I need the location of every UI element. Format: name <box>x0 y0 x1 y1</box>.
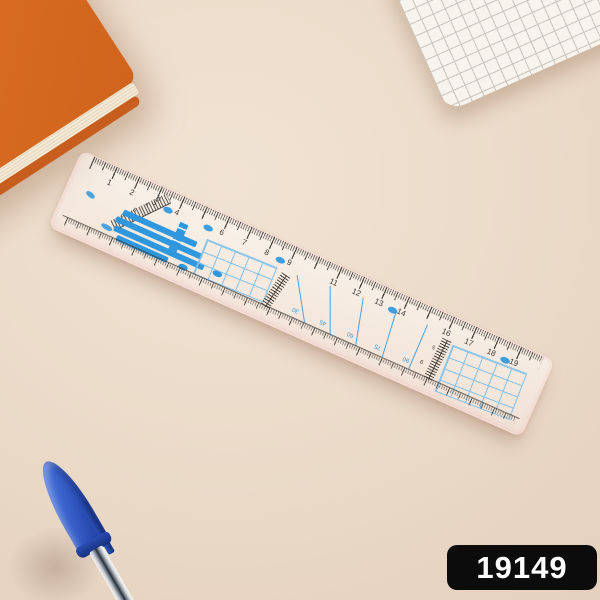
cm-number: 13 <box>373 297 384 308</box>
cm-number: 2 <box>128 188 135 197</box>
product-code-text: 19149 <box>476 550 567 586</box>
blue-highlight-dot <box>202 223 214 233</box>
angle-label: 75 <box>374 342 383 350</box>
cm-number: 12 <box>351 287 362 298</box>
angle-label: 45 <box>319 318 328 326</box>
transparent-ruler: 123467891112131416171819 3456 30 45 60 7… <box>48 150 555 437</box>
angle-label: 30 <box>292 306 301 314</box>
taper-gauge-comb <box>111 193 172 230</box>
blue-highlight-dot <box>274 255 286 265</box>
cm-number: 6 <box>218 228 225 237</box>
angle-guide-line <box>297 275 306 323</box>
angle-guide-line <box>382 311 397 357</box>
cm-number: 4 <box>173 208 180 217</box>
cm-number: 1 <box>106 178 113 187</box>
angle-guide-line <box>355 298 364 346</box>
gauge-number: 9 <box>420 357 425 363</box>
cm-number: 8 <box>263 248 270 257</box>
cm-number: 17 <box>463 337 474 348</box>
desk-scene: 123467891112131416171819 3456 30 45 60 7… <box>0 0 600 600</box>
angle-guide-line <box>408 324 428 369</box>
angle-label: 60 <box>346 330 355 338</box>
grid-notepad <box>324 0 600 112</box>
pen-barrel <box>89 545 169 600</box>
angle-guide-line <box>330 286 331 334</box>
product-code-badge: 19149 <box>447 545 597 590</box>
cm-number: 7 <box>240 238 247 247</box>
angle-label: 90 <box>402 355 411 363</box>
cm-number: 18 <box>485 347 496 358</box>
small-blue-mark <box>85 190 96 200</box>
cm-number: 9 <box>285 258 292 267</box>
